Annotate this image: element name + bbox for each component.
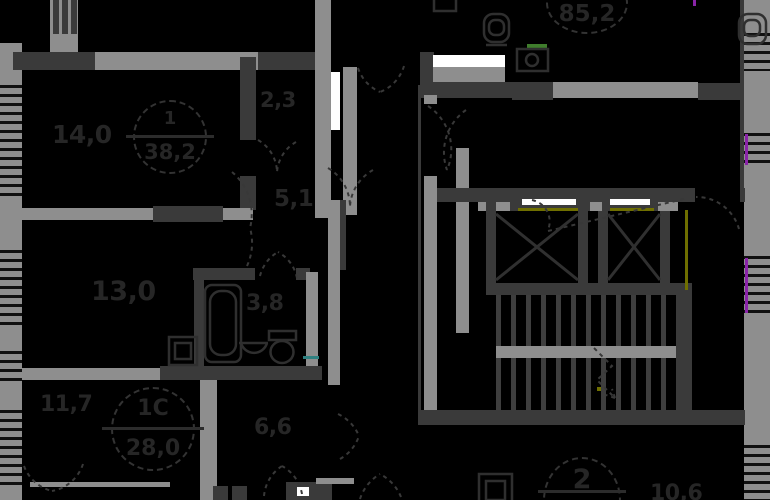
room-area-label: 2,3 (260, 88, 296, 112)
toilet-icon (739, 14, 766, 44)
floor-plan: 14,0 2,3 5,1 13,0 3,8 11,7 6,6 10,6 1 38… (0, 0, 770, 500)
marker-divider (126, 135, 214, 138)
toilet-icon (484, 14, 509, 45)
bathtub-icon (205, 285, 241, 362)
marker-divider (538, 490, 626, 493)
room-area-label: 3,8 (246, 291, 283, 316)
stair-direction-arrow-icon (594, 348, 615, 398)
room-area-label: 13,0 (91, 276, 156, 307)
apartment-area: 38,2 (144, 140, 196, 164)
toilet-icon (269, 331, 296, 363)
room-area-label: 6,6 (254, 415, 291, 440)
apartment-area: 28,0 (126, 436, 180, 461)
room-area-label: 11,7 (40, 392, 92, 417)
room-area-label: 10,6 (650, 481, 702, 500)
sink-icon (239, 343, 268, 353)
cut-fixture-icon (434, 0, 456, 11)
room-area-label: 5,1 (274, 186, 313, 212)
room-area-label: 14,0 (52, 120, 112, 149)
apartment-area: 85,2 (559, 1, 616, 27)
marker-divider (102, 427, 204, 430)
washing-machine-icon (479, 474, 512, 500)
washing-machine-icon (169, 337, 197, 365)
apartment-number: 1С (137, 396, 168, 421)
elevator-shaft-icon (496, 214, 660, 280)
washing-machine-icon (517, 49, 548, 71)
apartment-number: 1 (164, 108, 177, 129)
